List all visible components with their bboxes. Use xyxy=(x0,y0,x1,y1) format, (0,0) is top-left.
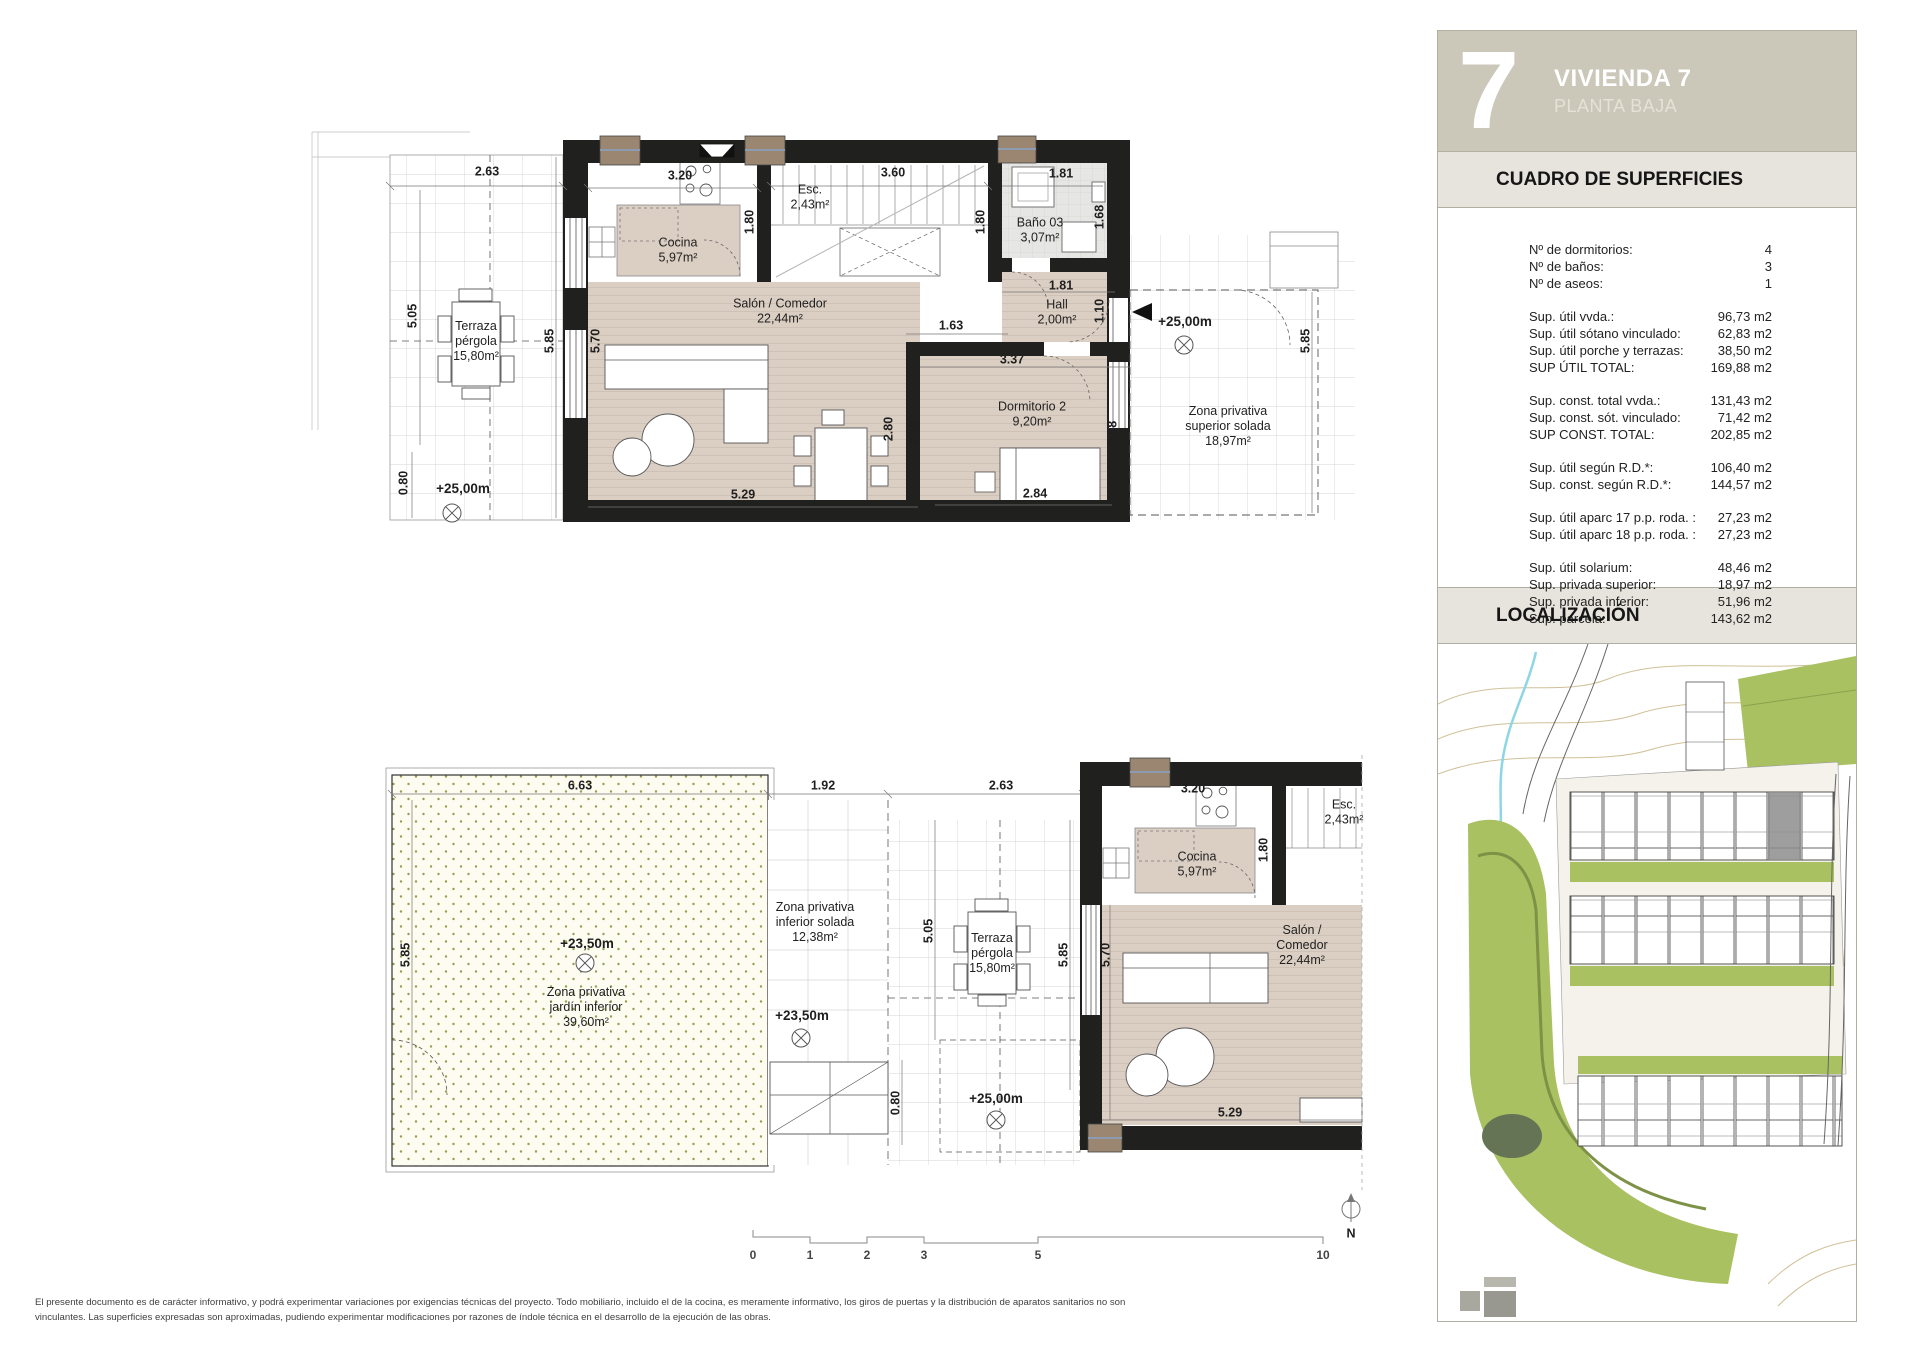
surface-label: SUP ÚTIL TOTAL: xyxy=(1529,359,1634,376)
info-sidebar: 7 VIVIENDA 7 PLANTA BAJA CUADRO DE SUPER… xyxy=(1437,30,1857,1322)
surface-value: 144,57 m2 xyxy=(1711,476,1772,493)
unit-subtitle: PLANTA BAJA xyxy=(1554,96,1691,117)
surface-label: Sup. útil porche y terrazas: xyxy=(1529,342,1684,359)
unit-header: 7 VIVIENDA 7 PLANTA BAJA xyxy=(1437,30,1857,152)
scalebar-tick-label: 2 xyxy=(864,1248,871,1262)
disclaimer-line-1: El presente documento es de carácter inf… xyxy=(35,1295,1125,1310)
surface-value: 71,42 m2 xyxy=(1718,409,1772,426)
scalebar-tick-label: 1 xyxy=(807,1248,814,1262)
surfaces-table: Nº de dormitorios:4Nº de baños:3Nº de as… xyxy=(1437,208,1857,588)
localization-map xyxy=(1437,644,1857,1322)
site-plan-map xyxy=(1438,644,1856,1318)
scalebar-tick-label: 3 xyxy=(921,1248,928,1262)
surface-label: Sup. útil según R.D.*: xyxy=(1529,459,1653,476)
disclaimer: El presente documento es de carácter inf… xyxy=(35,1295,1125,1325)
surface-row: Sup. útil vvda.:96,73 m2 xyxy=(1529,308,1772,325)
surface-label: Nº de baños: xyxy=(1529,258,1604,275)
surface-value: 38,50 m2 xyxy=(1718,342,1772,359)
surface-label: Sup. útil aparc 17 p.p. roda. : xyxy=(1529,509,1696,526)
surface-value: 96,73 m2 xyxy=(1718,308,1772,325)
surface-value: 131,43 m2 xyxy=(1711,392,1772,409)
surface-row: Sup. útil aparc 18 p.p. roda. :27,23 m2 xyxy=(1529,526,1772,543)
surface-row: Sup. privada superior:18,97 m2 xyxy=(1529,576,1772,593)
surfaces-header: CUADRO DE SUPERFICIES xyxy=(1437,152,1857,208)
surface-value: 143,62 m2 xyxy=(1711,610,1772,627)
lower-floor-plan xyxy=(386,755,1362,1190)
surface-row: Nº de dormitorios:4 xyxy=(1529,241,1772,258)
surface-value: 169,88 m2 xyxy=(1711,359,1772,376)
surface-label: Sup. const. según R.D.*: xyxy=(1529,476,1671,493)
surface-label: Nº de aseos: xyxy=(1529,275,1603,292)
scalebar-tick-label: 5 xyxy=(1035,1248,1042,1262)
surface-value: 27,23 m2 xyxy=(1718,509,1772,526)
surface-value: 62,83 m2 xyxy=(1718,325,1772,342)
surface-label: Sup. const. sót. vinculado: xyxy=(1529,409,1681,426)
surface-row: SUP CONST. TOTAL:202,85 m2 xyxy=(1529,426,1772,443)
surface-value: 106,40 m2 xyxy=(1711,459,1772,476)
surface-label: Sup. const. total vvda.: xyxy=(1529,392,1661,409)
surface-value: 27,23 m2 xyxy=(1718,526,1772,543)
surface-value: 202,85 m2 xyxy=(1711,426,1772,443)
surface-value: 51,96 m2 xyxy=(1718,593,1772,610)
surface-value: 4 xyxy=(1765,241,1772,258)
surface-row: Sup. útil solarium:48,46 m2 xyxy=(1529,559,1772,576)
surface-row: Sup. útil según R.D.*:106,40 m2 xyxy=(1529,459,1772,476)
scalebar-tick-label: 10 xyxy=(1316,1248,1329,1262)
surface-label: Sup. útil solarium: xyxy=(1529,559,1632,576)
developer-logo xyxy=(1460,1275,1520,1317)
scale-bar xyxy=(753,1230,1323,1244)
plan-sheet: 2.633.203.601.81Esc. 2,43m²1.801.801.68B… xyxy=(0,0,1920,1357)
disclaimer-line-2: vinculantes. Las superficies expresadas … xyxy=(35,1310,1125,1325)
surface-label: Sup. privada superior: xyxy=(1529,576,1656,593)
north-arrow-icon xyxy=(1342,1193,1360,1222)
surface-value: 48,46 m2 xyxy=(1718,559,1772,576)
surface-row: Sup. útil porche y terrazas:38,50 m2 xyxy=(1529,342,1772,359)
surface-row: Sup. útil sótano vinculado:62,83 m2 xyxy=(1529,325,1772,342)
surface-label: SUP CONST. TOTAL: xyxy=(1529,426,1654,443)
surface-value: 18,97 m2 xyxy=(1718,576,1772,593)
scalebar-tick-label: 0 xyxy=(750,1248,757,1262)
surface-row: Sup. const. según R.D.*:144,57 m2 xyxy=(1529,476,1772,493)
surface-row: Sup. const. total vvda.:131,43 m2 xyxy=(1529,392,1772,409)
surface-label: Sup. útil sótano vinculado: xyxy=(1529,325,1681,342)
surface-label: Sup. útil aparc 18 p.p. roda. : xyxy=(1529,526,1696,543)
unit-number: 7 xyxy=(1458,43,1554,140)
surface-row: Sup. útil aparc 17 p.p. roda. :27,23 m2 xyxy=(1529,509,1772,526)
surface-value: 1 xyxy=(1765,275,1772,292)
surface-row: Sup. const. sót. vinculado:71,42 m2 xyxy=(1529,409,1772,426)
upper-floor-plan xyxy=(312,132,1355,522)
surface-label: Nº de dormitorios: xyxy=(1529,241,1633,258)
surface-row: Nº de baños:3 xyxy=(1529,258,1772,275)
floor-plan-drawing xyxy=(0,0,1435,1357)
surface-label: Sup. útil vvda.: xyxy=(1529,308,1614,325)
surface-row: Nº de aseos:1 xyxy=(1529,275,1772,292)
surface-value: 3 xyxy=(1765,258,1772,275)
unit-title: VIVIENDA 7 xyxy=(1554,65,1691,93)
surface-row: SUP ÚTIL TOTAL:169,88 m2 xyxy=(1529,359,1772,376)
